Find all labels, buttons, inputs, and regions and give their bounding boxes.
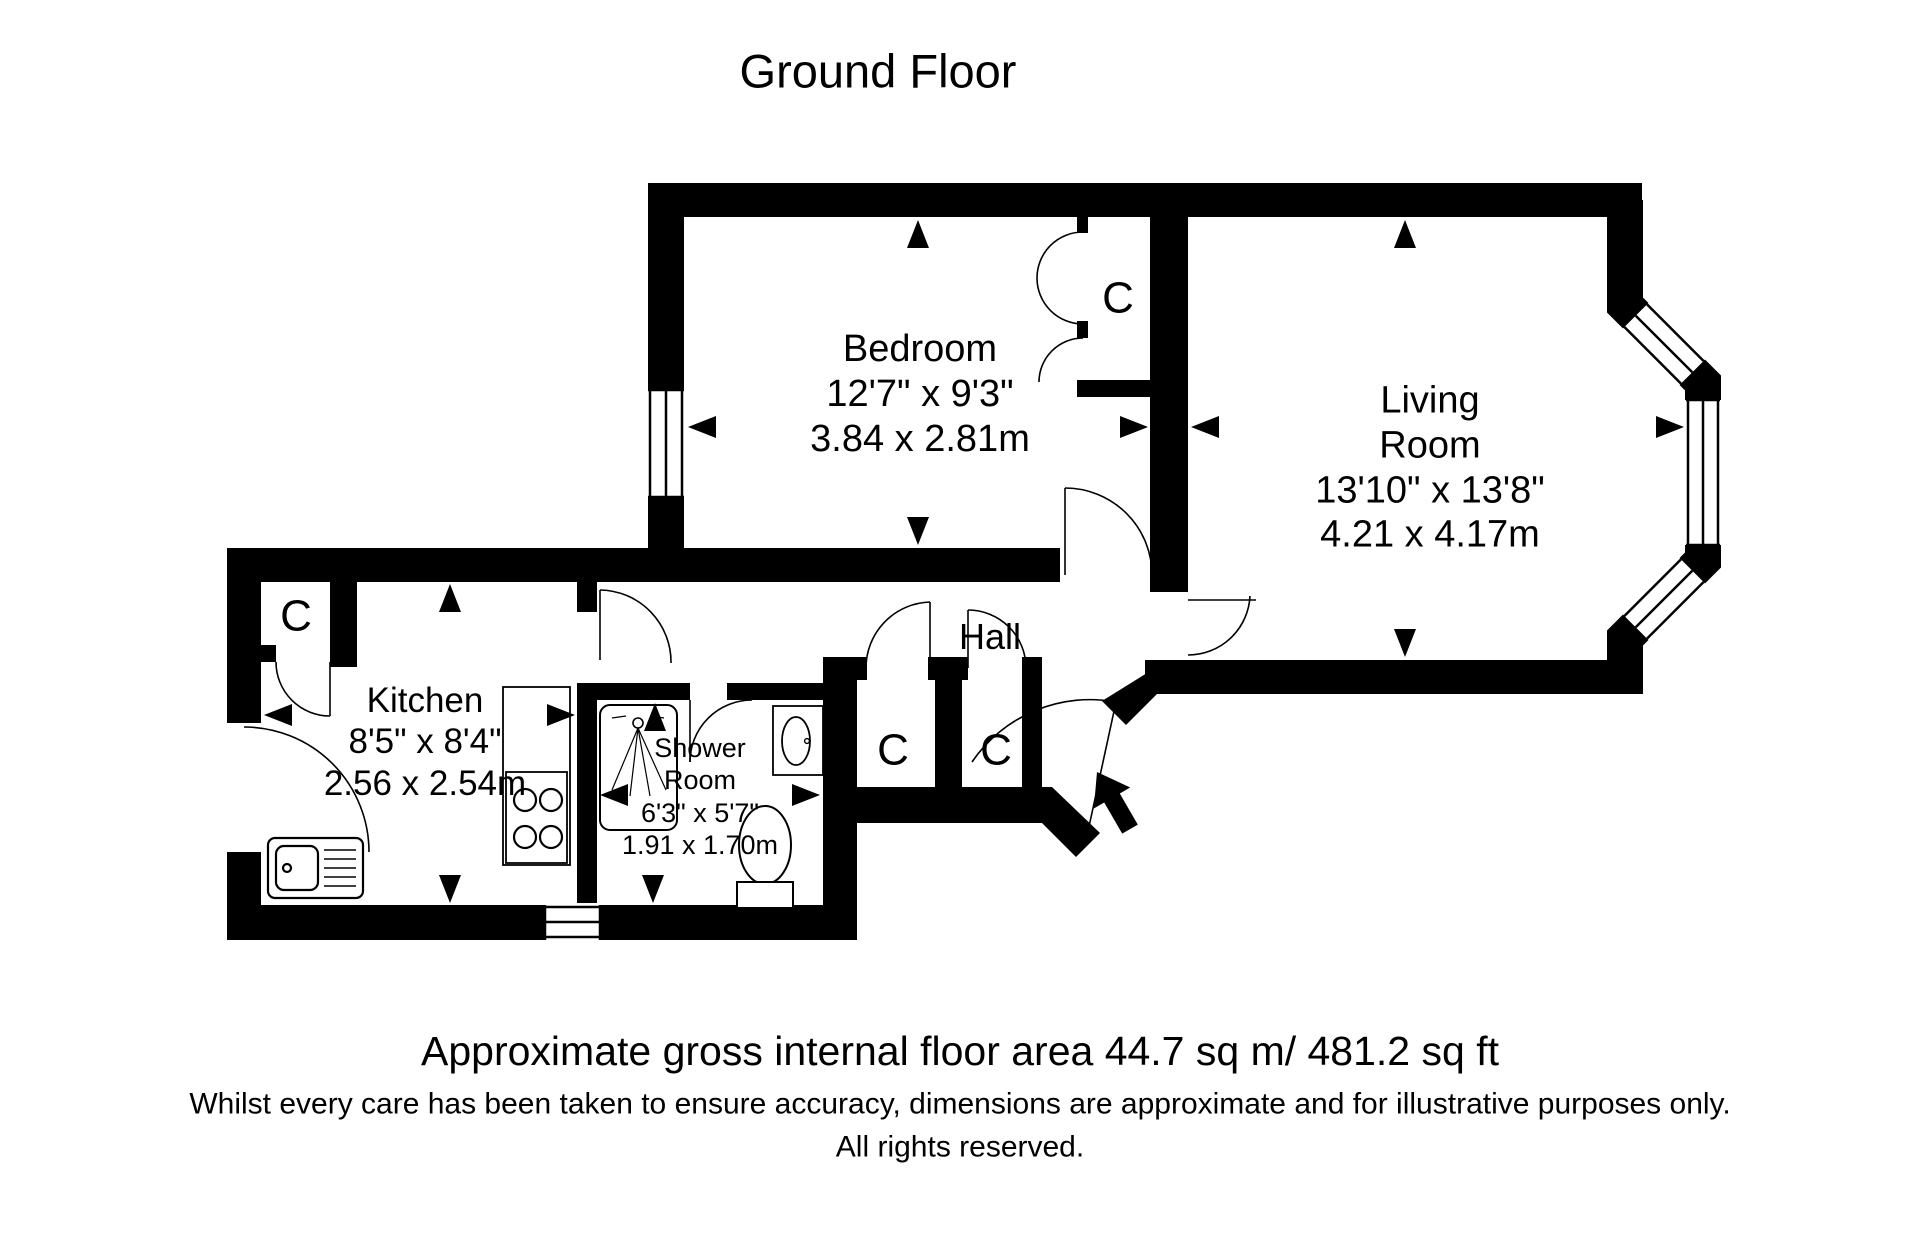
closet-label-bedroom: C [1102, 272, 1134, 323]
bedroom-arrow-left [688, 416, 716, 438]
shower-arrow-right [792, 784, 820, 806]
livingroom-dim-imperial: 13'10" x 13'8" [1315, 468, 1545, 513]
wall-segment [1077, 380, 1150, 397]
wall-segment [595, 683, 690, 700]
window [545, 903, 600, 942]
shower-name-line2: Room [622, 765, 778, 797]
wall-segment [1150, 183, 1188, 592]
door-arc [1065, 488, 1152, 575]
livingroom-name-line2: Room [1315, 423, 1545, 468]
bedroom-name: Bedroom [810, 327, 1030, 372]
kitchen-name: Kitchen [324, 680, 526, 721]
closet-label-kitchen: C [280, 590, 312, 641]
bedroom-dim-imperial: 12'7" x 9'3" [810, 372, 1030, 417]
walls [227, 183, 1703, 940]
room-label-living-room: Living Room 13'10" x 13'8" 4.21 x 4.17m [1315, 378, 1545, 557]
wall-segment [227, 548, 1060, 582]
wash-basin [773, 706, 823, 775]
wall-segment [648, 183, 684, 390]
room-label-bedroom: Bedroom 12'7" x 9'3" 3.84 x 2.81m [810, 327, 1030, 461]
page-title: Ground Floor [740, 45, 1017, 100]
shower-arrow-down [642, 875, 664, 903]
wall-segment [227, 905, 545, 940]
footer-rights-text: All rights reserved. [836, 1131, 1084, 1166]
kitchen-arrow-up [439, 584, 461, 612]
floorplan-page: Ground Floor Bedroom 12'7" x 9'3" 3.84 x… [0, 0, 1920, 1234]
room-label-hall: Hall [959, 616, 1021, 658]
bedroom-dim-metric: 3.84 x 2.81m [810, 416, 1030, 461]
window [646, 390, 686, 497]
wall-segment [577, 683, 597, 905]
closet-label-hall-left: C [877, 724, 909, 775]
shower-dim-metric: 1.91 x 1.70m [622, 829, 778, 861]
kitchen-arrow-down [439, 875, 461, 903]
livingroom-name-line1: Living [1315, 378, 1545, 423]
wall-segment [648, 183, 1642, 217]
door-arc [600, 590, 671, 663]
livingroom-arrow-right [1656, 416, 1684, 438]
wall-segment [227, 852, 261, 905]
wall-segment [727, 683, 823, 700]
wall-segment [935, 680, 962, 787]
bedroom-arrow-up [907, 220, 929, 248]
room-label-kitchen: Kitchen 8'5" x 8'4" 2.56 x 2.54m [324, 680, 526, 804]
kitchen-arrow-left [264, 704, 292, 726]
closet-label-hall-right: C [980, 724, 1012, 775]
room-label-shower-room: Shower Room 6'3" x 5'7" 1.91 x 1.70m [622, 732, 778, 862]
wall-segment [1022, 657, 1042, 790]
wall-segment [227, 548, 261, 723]
wall-segment [1077, 217, 1088, 233]
wall-segment [857, 657, 867, 680]
livingroom-dim-metric: 4.21 x 4.17m [1315, 513, 1545, 558]
footer-disclaimer-text: Whilst every care has been taken to ensu… [189, 1088, 1730, 1123]
livingroom-arrow-left [1191, 416, 1219, 438]
wall-segment [600, 905, 857, 940]
livingroom-arrow-down [1394, 629, 1416, 657]
door [866, 602, 930, 668]
door [600, 590, 671, 663]
kitchen-dim-imperial: 8'5" x 8'4" [324, 721, 526, 762]
door [1188, 596, 1256, 655]
wall-segment [1145, 660, 1642, 694]
bedroom-arrow-right [1120, 416, 1148, 438]
footer-area-text: Approximate gross internal floor area 44… [421, 1028, 1499, 1076]
door [1065, 488, 1152, 575]
shower-dim-imperial: 6'3" x 5'7" [622, 797, 778, 829]
kitchen-dim-metric: 2.56 x 2.54m [324, 763, 526, 804]
bifold-doors [1037, 232, 1083, 382]
shower-name-line1: Shower [622, 732, 778, 764]
wall-segment [823, 787, 1052, 823]
door-arc [866, 602, 930, 668]
livingroom-arrow-up [1394, 220, 1416, 248]
bay-window-middle [1685, 400, 1721, 545]
wall-segment [330, 582, 357, 667]
door-arc [1188, 596, 1250, 655]
wall-segment [577, 582, 597, 612]
wall-segment [261, 645, 276, 662]
wall-segment [928, 657, 968, 680]
bedroom-arrow-down [907, 517, 929, 545]
kitchen-sink [268, 838, 363, 898]
